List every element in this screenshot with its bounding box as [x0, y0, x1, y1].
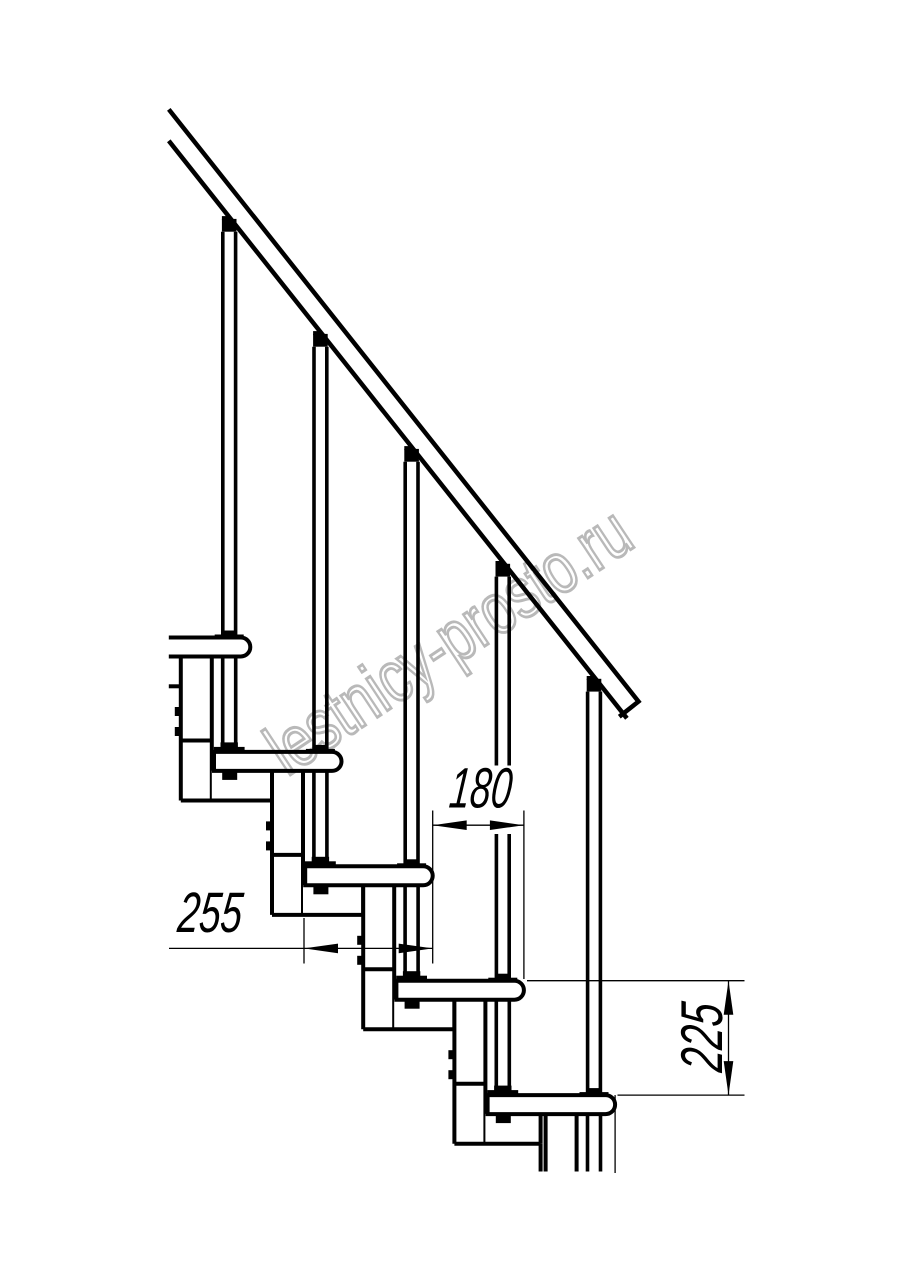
svg-text:255: 255 — [174, 881, 246, 945]
svg-text:180: 180 — [447, 757, 516, 821]
svg-text:225: 225 — [668, 999, 735, 1075]
